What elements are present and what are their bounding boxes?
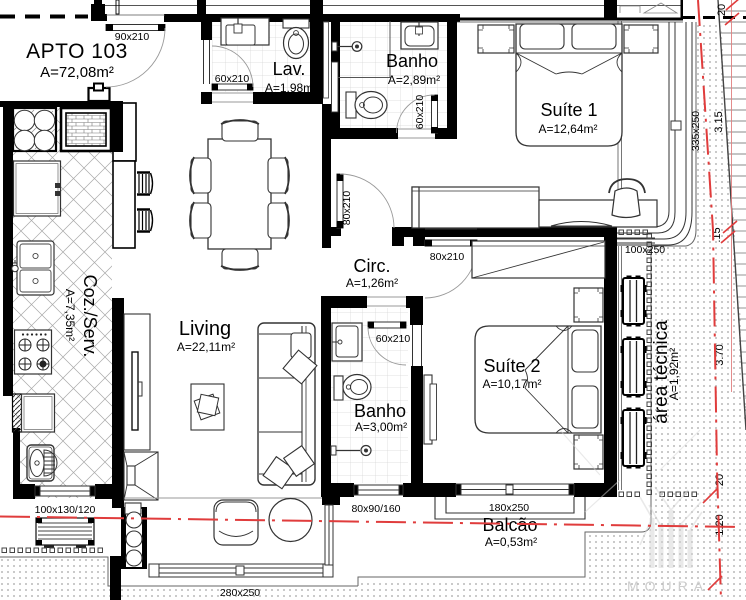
svg-text:A=2,89m²: A=2,89m² [388, 73, 440, 87]
svg-text:180x250: 180x250 [489, 502, 529, 514]
svg-text:Coz./Serv.: Coz./Serv. [80, 275, 100, 358]
svg-text:A=7,35m²: A=7,35m² [63, 289, 77, 341]
svg-text:335x250: 335x250 [690, 111, 702, 151]
svg-text:A=3,00m²: A=3,00m² [355, 420, 407, 434]
svg-text:60x210: 60x210 [215, 73, 250, 85]
svg-text:80x90/160: 80x90/160 [351, 503, 400, 515]
svg-text:3.15: 3.15 [713, 111, 725, 132]
svg-text:APTO 103: APTO 103 [26, 40, 128, 63]
svg-text:Banho: Banho [386, 51, 438, 71]
svg-text:Suíte 1: Suíte 1 [540, 100, 597, 120]
svg-text:20: 20 [714, 474, 726, 486]
svg-text:60x210: 60x210 [376, 333, 411, 345]
svg-text:A=72,08m²: A=72,08m² [40, 64, 114, 81]
svg-text:90x210: 90x210 [115, 31, 150, 43]
svg-text:100x250: 100x250 [625, 244, 665, 256]
svg-text:60x210: 60x210 [414, 95, 426, 130]
svg-text:100x130/120: 100x130/120 [35, 504, 96, 516]
svg-text:A=1,92m²: A=1,92m² [667, 348, 681, 400]
svg-text:Circ.: Circ. [354, 256, 391, 276]
svg-text:A=1,26m²: A=1,26m² [346, 276, 398, 290]
svg-text:80x210: 80x210 [341, 191, 353, 226]
svg-text:A=22,11m²: A=22,11m² [177, 340, 235, 354]
svg-text:Banho: Banho [354, 401, 406, 421]
svg-text:Suíte 2: Suíte 2 [483, 356, 540, 376]
svg-text:280x250: 280x250 [220, 587, 260, 599]
svg-text:A=12,64m²: A=12,64m² [538, 122, 597, 136]
svg-text:1.20: 1.20 [714, 514, 726, 535]
svg-text:A=0,53m²: A=0,53m² [485, 535, 537, 549]
svg-text:Lav.: Lav. [273, 59, 306, 79]
svg-text:Living: Living [179, 318, 231, 340]
svg-text:MOURA: MOURA [627, 578, 709, 594]
svg-text:A=1,98m²: A=1,98m² [265, 81, 317, 95]
svg-text:A=10,17m²: A=10,17m² [482, 377, 541, 391]
svg-text:80x210: 80x210 [430, 251, 465, 263]
